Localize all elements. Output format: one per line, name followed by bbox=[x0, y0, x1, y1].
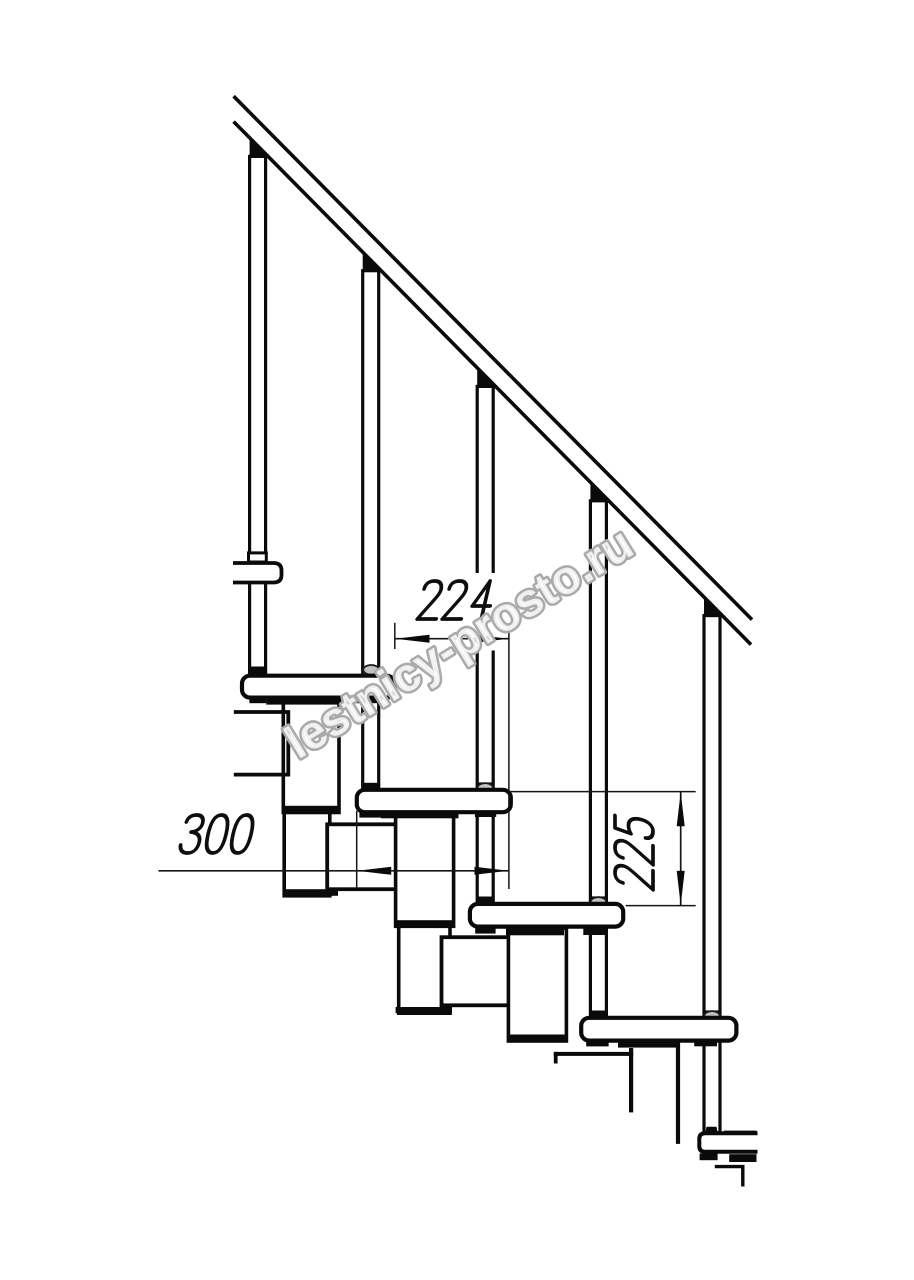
svg-text:lestnicy-prosto.ru: lestnicy-prosto.ru bbox=[276, 516, 642, 769]
